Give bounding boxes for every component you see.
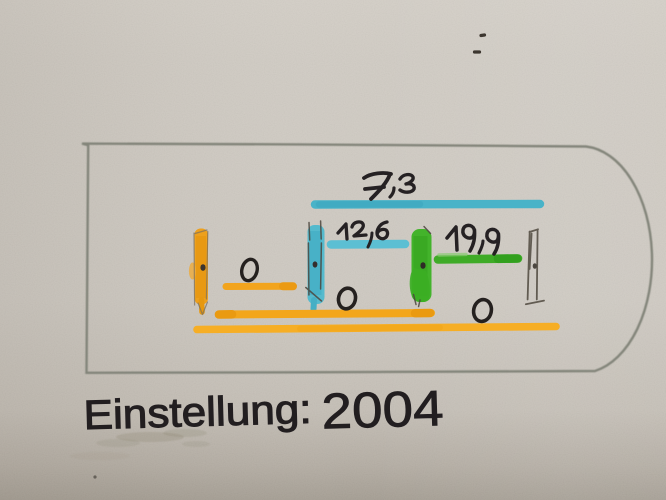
svg-text:2004: 2004 xyxy=(321,380,445,439)
